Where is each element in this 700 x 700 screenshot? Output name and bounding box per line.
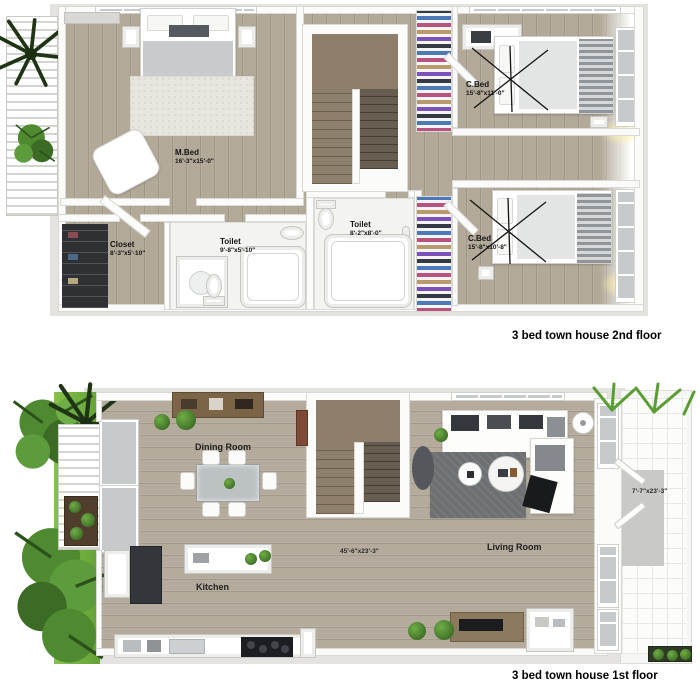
bush-icon xyxy=(81,513,95,527)
counter-end xyxy=(300,628,316,658)
fridge xyxy=(130,546,162,604)
stair-flight xyxy=(316,442,354,514)
fan-hub xyxy=(580,420,586,426)
dining-chair xyxy=(202,450,220,465)
potted-plant-icon xyxy=(259,550,271,562)
sliding-glass-door xyxy=(100,486,138,552)
dining-table xyxy=(196,464,260,502)
window xyxy=(452,393,564,400)
bush-icon xyxy=(653,649,664,660)
room-label-kitchen: Kitchen xyxy=(196,582,229,592)
sofa-pillow xyxy=(451,415,479,431)
round-coffee-table xyxy=(458,462,482,486)
dining-chair xyxy=(262,472,277,490)
potted-plant-icon xyxy=(154,414,170,430)
potted-plant-icon xyxy=(434,620,454,640)
table-decor xyxy=(498,469,508,477)
sliding-glass-door xyxy=(100,420,138,486)
table-decor xyxy=(510,468,517,477)
kitchen-counter xyxy=(114,634,314,658)
window xyxy=(598,545,618,607)
sofa-pillow xyxy=(519,415,543,429)
table-decor xyxy=(467,471,474,478)
oval-side-table xyxy=(412,446,434,490)
dining-chair xyxy=(180,472,195,490)
room-label-living: Living Room xyxy=(487,542,542,552)
island-item xyxy=(193,553,209,563)
dining-chair xyxy=(228,450,246,465)
bush-icon xyxy=(680,649,691,660)
bush-icon xyxy=(70,527,83,540)
decor-item xyxy=(209,398,223,410)
patio-dimensions: 7'-7"x23'-3" xyxy=(632,488,667,495)
dining-chair xyxy=(202,502,220,517)
tv xyxy=(459,619,503,631)
appliance xyxy=(147,640,161,652)
potted-plant-icon xyxy=(245,553,257,565)
tv-console xyxy=(450,612,524,642)
decor-item xyxy=(181,399,197,409)
first-floor-plan: Dining Room Kitchen Living Room 45'-6"x2… xyxy=(0,0,700,700)
wall xyxy=(96,550,102,654)
sofa-pillow xyxy=(487,415,511,429)
fridge-line xyxy=(131,574,161,576)
window xyxy=(598,610,618,650)
potted-plant-icon xyxy=(434,428,448,442)
room-label-dining: Dining Room xyxy=(195,442,251,452)
sofa-throw xyxy=(547,417,565,437)
decor-item xyxy=(235,399,253,409)
wall xyxy=(96,400,102,422)
burner xyxy=(259,645,267,653)
planter-box xyxy=(64,496,98,546)
dining-chair xyxy=(228,502,246,517)
kitchen-sink xyxy=(169,639,205,654)
ceiling-fan-icon xyxy=(572,412,594,434)
floorplan-image: M.Bed 16'-3"x15'-0" C.Bed 15'-8"x11'-0" … xyxy=(0,0,700,700)
sideboard-white xyxy=(526,608,574,652)
sofa-throw xyxy=(535,445,565,471)
decor-item xyxy=(553,619,565,627)
decor-item xyxy=(535,617,549,627)
cabinet xyxy=(104,550,130,598)
fern-plant-icon xyxy=(592,380,696,426)
kitchen-island xyxy=(184,544,272,574)
stair-flight xyxy=(364,442,400,502)
round-coffee-table xyxy=(488,456,524,492)
potted-plant-icon xyxy=(408,622,426,640)
bush-icon xyxy=(69,501,81,513)
tall-cabinet xyxy=(296,410,308,446)
planter-box xyxy=(648,646,692,662)
main-dimensions: 45'-6"x23'-3" xyxy=(340,548,379,555)
burner xyxy=(281,645,289,653)
first-floor-caption: 3 bed town house 1st floor xyxy=(512,670,658,682)
stair-landing xyxy=(316,400,400,442)
centerpiece xyxy=(224,478,235,489)
stair-rail xyxy=(354,442,364,514)
appliance xyxy=(123,640,141,652)
burner xyxy=(271,641,279,649)
stove xyxy=(241,637,293,657)
potted-plant-icon xyxy=(176,410,196,430)
bush-icon xyxy=(667,650,678,661)
burner xyxy=(247,641,255,649)
